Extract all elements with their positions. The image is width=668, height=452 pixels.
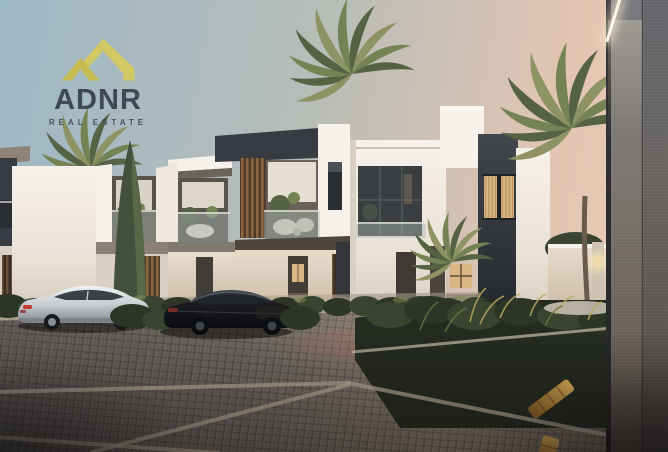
cypress-tree <box>113 140 147 308</box>
brand-text: ADNR <box>40 86 156 115</box>
adnr-logo: ADNR REAL ESTATE <box>40 30 156 127</box>
architectural-rendering: ADNR REAL ESTATE <box>0 0 668 452</box>
speed-bump <box>536 435 560 452</box>
wall-seam <box>642 0 643 452</box>
foreground-wall <box>606 0 668 452</box>
tagline-text: REAL ESTATE <box>40 118 156 127</box>
wall-light-glow <box>608 20 642 140</box>
shrub <box>280 306 320 330</box>
roof-chevrons-icon <box>54 30 142 84</box>
